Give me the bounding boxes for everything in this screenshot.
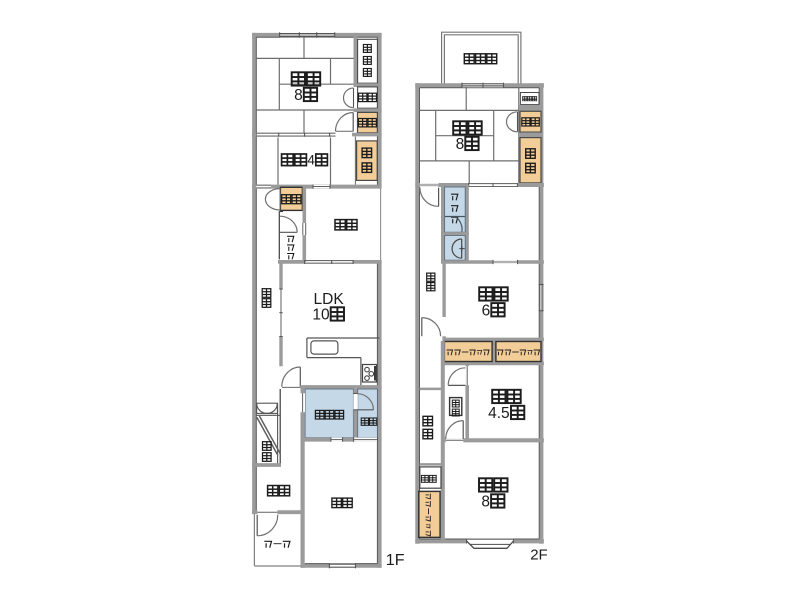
svg-text:6: 6 (482, 302, 491, 319)
svg-text:8: 8 (481, 494, 490, 511)
svg-text:LDK: LDK (314, 291, 345, 308)
svg-text:4.5: 4.5 (488, 405, 510, 422)
svg-text:8: 8 (294, 87, 303, 104)
svg-text:2F: 2F (530, 546, 548, 563)
svg-text:8: 8 (456, 136, 465, 153)
svg-text:10: 10 (312, 307, 330, 324)
svg-text:4: 4 (307, 153, 315, 168)
svg-text:1F: 1F (386, 552, 405, 569)
